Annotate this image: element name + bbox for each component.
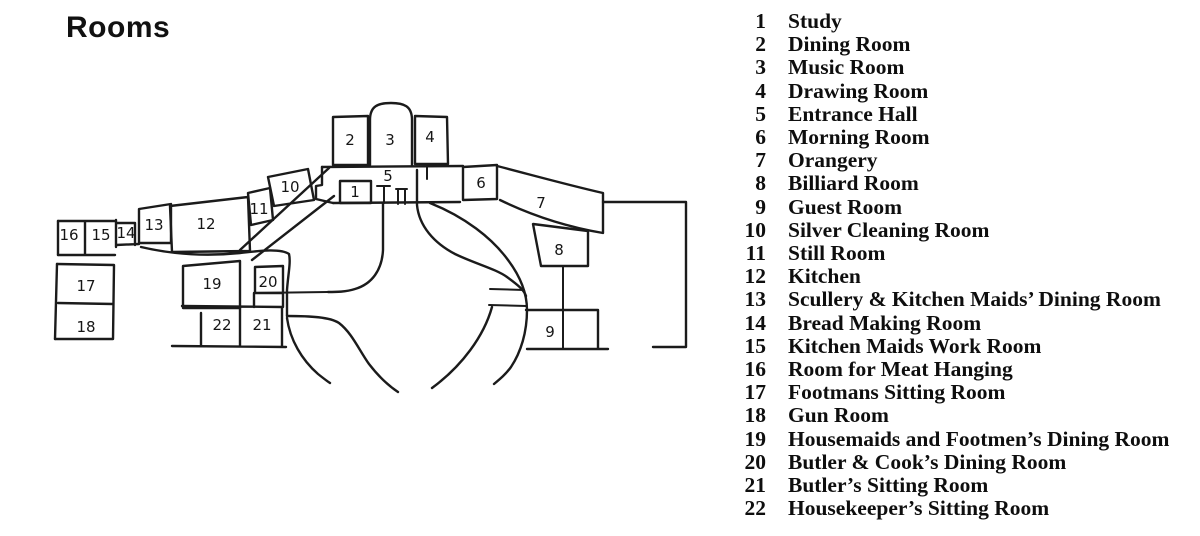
plan-label-20: 20 <box>258 273 277 291</box>
legend-item-6: 6Morning Room <box>735 126 1169 149</box>
legend-room-name: Guest Room <box>788 196 902 219</box>
legend-number: 9 <box>735 196 766 219</box>
plan-label-15: 15 <box>91 226 110 244</box>
plan-label-1: 1 <box>350 183 360 201</box>
legend-item-20: 20Butler & Cook’s Dining Room <box>735 451 1169 474</box>
courtyard-bottom-inner-right-curve <box>432 307 492 388</box>
legend-room-name: Butler & Cook’s Dining Room <box>788 451 1066 474</box>
legend-item-7: 7Orangery <box>735 149 1169 172</box>
legend-item-21: 21Butler’s Sitting Room <box>735 474 1169 497</box>
stair-mark-t <box>377 186 390 203</box>
legend-item-5: 5Entrance Hall <box>735 103 1169 126</box>
legend-item-3: 3Music Room <box>735 56 1169 79</box>
floor-plan: 1 2 3 4 5 6 7 8 9 10 11 12 13 14 15 16 1… <box>0 0 720 536</box>
legend-number: 16 <box>735 358 766 381</box>
legend-item-10: 10Silver Cleaning Room <box>735 219 1169 242</box>
legend-item-14: 14Bread Making Room <box>735 312 1169 335</box>
legend-room-name: Study <box>788 10 842 33</box>
courtyard-left-inner-curve <box>328 203 383 292</box>
right-corridor-lines <box>489 289 526 306</box>
legend-room-name: Morning Room <box>788 126 930 149</box>
legend-item-12: 12Kitchen <box>735 265 1169 288</box>
plan-label-18: 18 <box>76 318 95 336</box>
legend-number: 13 <box>735 288 766 311</box>
room-9-wall <box>526 310 608 349</box>
legend-item-11: 11Still Room <box>735 242 1169 265</box>
legend-room-name: Orangery <box>788 149 878 172</box>
legend-room-name: Still Room <box>788 242 885 265</box>
legend-item-13: 13Scullery & Kitchen Maids’ Dining Room <box>735 288 1169 311</box>
legend-room-name: Entrance Hall <box>788 103 918 126</box>
legend-number: 10 <box>735 219 766 242</box>
legend-room-name: Billiard Room <box>788 172 919 195</box>
legend-number: 14 <box>735 312 766 335</box>
legend-number: 7 <box>735 149 766 172</box>
plan-label-2: 2 <box>345 131 355 149</box>
room-7-wall <box>497 166 603 233</box>
legend-item-17: 17Footmans Sitting Room <box>735 381 1169 404</box>
legend-room-name: Butler’s Sitting Room <box>788 474 988 497</box>
legend-number: 6 <box>735 126 766 149</box>
legend-number: 15 <box>735 335 766 358</box>
legend-room-name: Bread Making Room <box>788 312 981 335</box>
legend-item-8: 8Billiard Room <box>735 172 1169 195</box>
plan-label-11: 11 <box>249 200 268 218</box>
legend-room-name: Room for Meat Hanging <box>788 358 1013 381</box>
legend-number: 18 <box>735 404 766 427</box>
legend-item-9: 9Guest Room <box>735 196 1169 219</box>
plan-label-5: 5 <box>383 167 393 185</box>
legend-number: 5 <box>735 103 766 126</box>
legend-number: 3 <box>735 56 766 79</box>
legend-room-name: Kitchen Maids Work Room <box>788 335 1041 358</box>
legend-number: 12 <box>735 265 766 288</box>
room-legend: 1Study 2Dining Room 3Music Room 4Drawing… <box>735 10 1169 520</box>
legend-number: 21 <box>735 474 766 497</box>
plan-label-19: 19 <box>202 275 221 293</box>
plan-label-6: 6 <box>476 174 486 192</box>
plan-label-4: 4 <box>425 128 435 146</box>
plan-label-17: 17 <box>76 277 95 295</box>
legend-room-name: Dining Room <box>788 33 910 56</box>
plan-label-7: 7 <box>536 194 546 212</box>
legend-number: 19 <box>735 428 766 451</box>
legend-room-name: Footmans Sitting Room <box>788 381 1005 404</box>
plan-label-12: 12 <box>196 215 215 233</box>
legend-item-19: 19Housemaids and Footmen’s Dining Room <box>735 428 1169 451</box>
legend-item-15: 15Kitchen Maids Work Room <box>735 335 1169 358</box>
legend-item-16: 16Room for Meat Hanging <box>735 358 1169 381</box>
legend-number: 2 <box>735 33 766 56</box>
legend-number: 1 <box>735 10 766 33</box>
legend-room-name: Music Room <box>788 56 904 79</box>
legend-room-name: Housemaids and Footmen’s Dining Room <box>788 428 1169 451</box>
courtyard-bottom-outer-left-curve <box>287 318 330 383</box>
legend-number: 20 <box>735 451 766 474</box>
legend-room-name: Kitchen <box>788 265 861 288</box>
plan-label-3: 3 <box>385 131 395 149</box>
legend-item-4: 4Drawing Room <box>735 80 1169 103</box>
legend-room-name: Drawing Room <box>788 80 928 103</box>
legend-item-2: 2Dining Room <box>735 33 1169 56</box>
legend-number: 4 <box>735 80 766 103</box>
plan-label-10: 10 <box>280 178 299 196</box>
legend-room-name: Silver Cleaning Room <box>788 219 989 242</box>
plan-label-22: 22 <box>212 316 231 334</box>
plan-label-16: 16 <box>59 226 78 244</box>
legend-room-name: Gun Room <box>788 404 889 427</box>
plan-label-14: 14 <box>116 224 135 242</box>
courtyard-right-outer-curve <box>430 203 527 384</box>
courtyard-bottom-inner-left-curve <box>287 316 398 392</box>
plan-label-13: 13 <box>144 216 163 234</box>
plan-label-8: 8 <box>554 241 564 259</box>
plan-label-21: 21 <box>252 316 271 334</box>
legend-number: 8 <box>735 172 766 195</box>
legend-number: 11 <box>735 242 766 265</box>
legend-number: 22 <box>735 497 766 520</box>
legend-room-name: Scullery & Kitchen Maids’ Dining Room <box>788 288 1161 311</box>
legend-item-22: 22Housekeeper’s Sitting Room <box>735 497 1169 520</box>
left-outer-wall <box>55 221 58 339</box>
legend-item-1: 1Study <box>735 10 1169 33</box>
legend-item-18: 18Gun Room <box>735 404 1169 427</box>
right-boundary-wall <box>603 202 686 347</box>
legend-number: 17 <box>735 381 766 404</box>
legend-room-name: Housekeeper’s Sitting Room <box>788 497 1049 520</box>
scanned-floor-plan-page: Rooms <box>0 0 1200 536</box>
plan-label-9: 9 <box>545 323 555 341</box>
courtyard-right-inner-curve <box>417 170 526 296</box>
